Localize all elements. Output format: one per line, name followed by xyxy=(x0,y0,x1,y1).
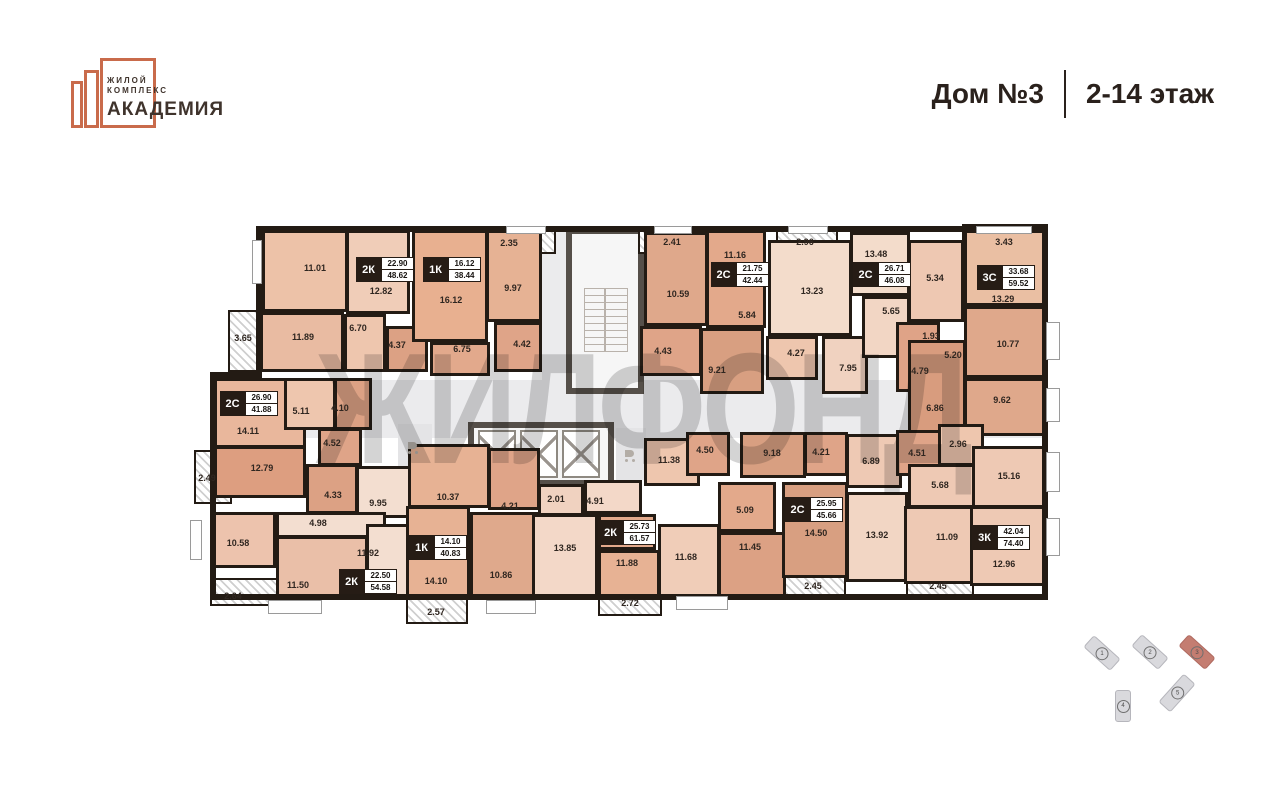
room-area-label: 4.43 xyxy=(654,346,672,356)
apartment-badge[interactable]: 1К16.1238.44 xyxy=(423,257,481,282)
room-area-label: 14.50 xyxy=(805,528,828,538)
room-block xyxy=(260,312,344,372)
window-opening xyxy=(976,226,1032,234)
room-area-label: 16.12 xyxy=(440,295,463,305)
living-area: 22.90 xyxy=(382,258,413,269)
room-area-label: 1.93 xyxy=(922,331,940,341)
apartment-badge[interactable]: 3К42.0474.40 xyxy=(972,525,1030,550)
room-area-label: 10.58 xyxy=(227,538,250,548)
room-area-label: 4.27 xyxy=(787,348,805,358)
logo-line2: КОМПЛЕКС xyxy=(107,86,224,96)
room-area-label: 10.37 xyxy=(437,492,460,502)
room-block xyxy=(532,514,598,598)
window-opening xyxy=(788,226,828,234)
logo-name: АКАДЕМИЯ xyxy=(107,99,224,121)
total-area: 38.44 xyxy=(449,270,480,281)
room-area-label: 11.50 xyxy=(287,580,309,590)
room-area-label: 4.33 xyxy=(324,490,342,500)
living-area: 25.73 xyxy=(624,521,655,532)
logo-bar-icon xyxy=(71,81,83,128)
minimap-building-2[interactable]: 2 xyxy=(1131,634,1168,670)
total-area: 46.08 xyxy=(879,275,910,286)
apartment-type: 3С xyxy=(977,265,1002,290)
room-area-label: 11.38 xyxy=(658,455,680,465)
room-area-label: 2.96 xyxy=(796,237,814,247)
page-title: Дом №3 2-14 этаж xyxy=(932,70,1214,118)
room-area-label: 4.37 xyxy=(388,340,406,350)
room-area-label: 14.11 xyxy=(237,426,259,436)
room-block xyxy=(700,328,764,394)
apartment-type: 2С xyxy=(220,391,245,416)
room-area-label: 9.21 xyxy=(708,365,726,375)
room-area-label: 3.65 xyxy=(234,333,252,343)
apartment-type: 2С xyxy=(711,262,736,287)
room-area-label: 5.68 xyxy=(931,480,949,490)
room-area-label: 4.42 xyxy=(513,339,531,349)
room-area-label: 14.10 xyxy=(425,576,448,586)
minimap-building-number: 4 xyxy=(1117,700,1130,713)
apartment-type: 1К xyxy=(409,535,434,560)
stroller-icon xyxy=(624,450,638,462)
room-area-label: 4.21 xyxy=(812,447,830,457)
room-area-label: 4.50 xyxy=(696,445,714,455)
apartment-badge[interactable]: 1К14.1040.83 xyxy=(409,535,467,560)
room-area-label: 13.29 xyxy=(992,294,1015,304)
apartment-badge[interactable]: 2С26.7146.08 xyxy=(853,262,911,287)
living-area: 33.68 xyxy=(1003,266,1034,277)
living-area: 21.75 xyxy=(737,263,768,274)
minimap-building-number: 3 xyxy=(1191,646,1204,659)
wall-segment xyxy=(210,372,216,600)
room-area-label: 11.68 xyxy=(675,552,697,562)
house-number: Дом №3 xyxy=(932,78,1044,110)
room-block xyxy=(412,230,488,342)
total-area: 74.40 xyxy=(998,538,1029,549)
living-area: 22.50 xyxy=(365,570,396,581)
room-area-label: 2.72 xyxy=(621,598,639,608)
apartment-badge[interactable]: 2С21.7542.44 xyxy=(711,262,769,287)
apartment-type: 2К xyxy=(339,569,364,594)
room-area-label: 3.43 xyxy=(995,237,1013,247)
room-area-label: 9.97 xyxy=(504,283,522,293)
minimap-building-number: 1 xyxy=(1096,647,1109,660)
minimap-building-number: 5 xyxy=(1171,687,1184,700)
room-area-label: 4.51 xyxy=(908,448,926,458)
room-area-label: 13.23 xyxy=(801,286,824,296)
room-block xyxy=(766,336,818,380)
room-area-label: 2.57 xyxy=(427,607,445,617)
apartment-type: 3К xyxy=(972,525,997,550)
floor-range: 2-14 этаж xyxy=(1086,78,1214,110)
room-area-label: 11.88 xyxy=(616,558,638,568)
title-divider xyxy=(1064,70,1066,118)
room-area-label: 5.84 xyxy=(738,310,756,320)
wall-segment xyxy=(210,372,262,378)
living-area: 26.90 xyxy=(246,392,277,403)
room-area-label: 6.70 xyxy=(349,323,367,333)
room-area-label: 5.20 xyxy=(944,350,962,360)
room-block xyxy=(470,512,538,598)
room-area-label: 10.86 xyxy=(490,570,513,580)
corridor xyxy=(542,232,568,380)
room-area-label: 13.48 xyxy=(865,249,888,259)
room-area-label: 4.79 xyxy=(911,366,929,376)
room-area-label: 12.96 xyxy=(993,559,1016,569)
room-area-label: 4.21 xyxy=(501,501,519,511)
room-area-label: 11.16 xyxy=(724,250,746,260)
living-area: 14.10 xyxy=(435,536,466,547)
room-area-label: 2.96 xyxy=(949,439,967,449)
room-area-label: 2.64 xyxy=(224,591,242,601)
wall-segment xyxy=(258,226,1048,232)
window-opening xyxy=(1046,452,1060,492)
room-area-label: 5.65 xyxy=(882,306,900,316)
stroller-icon xyxy=(407,442,421,454)
room-area-label: 10.77 xyxy=(997,339,1020,349)
room-area-label: 4.98 xyxy=(309,518,327,528)
logo-line1: ЖИЛОЙ xyxy=(107,76,224,86)
apartment-badge[interactable]: 2К22.9048.62 xyxy=(356,257,414,282)
total-area: 42.44 xyxy=(737,275,768,286)
room-area-label: 9.95 xyxy=(369,498,387,508)
total-area: 61.57 xyxy=(624,533,655,544)
minimap-building-4[interactable]: 4 xyxy=(1115,690,1131,722)
room-area-label: 5.11 xyxy=(292,406,309,416)
room-area-label: 11.89 xyxy=(292,332,314,342)
window-opening xyxy=(268,600,322,614)
room-area-label: 9.62 xyxy=(993,395,1011,405)
room-area-label: 2.35 xyxy=(500,238,518,248)
room-area-label: 5.09 xyxy=(736,505,754,515)
floorplan-page: { "header": { "logo": {"line1": "ЖИЛОЙ",… xyxy=(0,0,1280,787)
living-area: 26.71 xyxy=(879,263,910,274)
room-block xyxy=(284,378,336,430)
logo-bar-icon xyxy=(84,70,99,128)
room-area-label: 7.95 xyxy=(839,363,857,373)
window-opening xyxy=(486,600,536,614)
logo-text: ЖИЛОЙ КОМПЛЕКС АКАДЕМИЯ xyxy=(107,76,224,121)
apartment-type: 2С xyxy=(785,497,810,522)
room-area-label: 9.18 xyxy=(763,448,781,458)
room-area-label: 2.41 xyxy=(663,237,681,247)
room-area-label: 4.52 xyxy=(323,438,341,448)
apartment-badge[interactable]: 2К25.7361.57 xyxy=(598,520,656,545)
total-area: 45.66 xyxy=(811,510,842,521)
window-opening xyxy=(1046,518,1060,556)
minimap-building-1[interactable]: 1 xyxy=(1083,635,1120,671)
apartment-badge[interactable]: 2С25.9545.66 xyxy=(785,497,843,522)
total-area: 48.62 xyxy=(382,270,413,281)
living-area: 42.04 xyxy=(998,526,1029,537)
room-area-label: 11.92 xyxy=(357,548,379,558)
room-area-label: 12.82 xyxy=(370,286,393,296)
apartment-type: 1К xyxy=(423,257,448,282)
apartment-type: 2К xyxy=(356,257,381,282)
window-opening xyxy=(654,226,692,234)
total-area: 59.52 xyxy=(1003,278,1034,289)
room-area-label: 2.45 xyxy=(929,581,947,591)
room-area-label: 4.10 xyxy=(331,403,349,413)
room-area-label: 13.92 xyxy=(866,530,889,540)
room-block xyxy=(904,506,974,584)
room-area-label: 11.09 xyxy=(936,532,958,542)
room-block xyxy=(306,464,358,514)
room-area-label: 15.16 xyxy=(998,471,1021,481)
minimap-building-number: 2 xyxy=(1144,646,1157,659)
window-opening xyxy=(506,226,546,234)
room-area-label: 4.91 xyxy=(586,496,604,506)
apartment-type: 2С xyxy=(853,262,878,287)
room-area-label: 11.45 xyxy=(739,542,761,552)
minimap-building-5[interactable]: 5 xyxy=(1158,674,1195,713)
room-area-label: 2.45 xyxy=(804,581,822,591)
minimap-building-3[interactable]: 3 xyxy=(1178,634,1215,670)
room-area-label: 13.85 xyxy=(554,543,577,553)
window-opening xyxy=(676,596,728,610)
room-area-label: 6.75 xyxy=(453,344,471,354)
room-area-label: 2.01 xyxy=(547,494,565,504)
room-area-label: 6.89 xyxy=(862,456,880,466)
room-area-label: 5.34 xyxy=(926,273,944,283)
window-opening xyxy=(1046,322,1060,360)
room-area-label: 11.01 xyxy=(304,263,326,273)
window-opening xyxy=(252,240,262,284)
living-area: 25.95 xyxy=(811,498,842,509)
stair-rail xyxy=(604,288,606,352)
room-area-label: 6.86 xyxy=(926,403,944,413)
logo: ЖИЛОЙ КОМПЛЕКС АКАДЕМИЯ xyxy=(68,52,288,142)
total-area: 54.58 xyxy=(365,582,396,593)
total-area: 41.88 xyxy=(246,404,277,415)
room-area-label: 10.59 xyxy=(667,289,690,299)
total-area: 40.83 xyxy=(435,548,466,559)
elevator-shaft xyxy=(562,430,600,478)
window-opening xyxy=(190,520,202,560)
apartment-badge[interactable]: 2К22.5054.58 xyxy=(339,569,397,594)
window-opening xyxy=(1046,388,1060,422)
room-area-label: 12.79 xyxy=(251,463,274,473)
room-area-label: 2.49 xyxy=(198,473,216,483)
staircase xyxy=(584,288,628,352)
apartment-badge[interactable]: 3С33.6859.52 xyxy=(977,265,1035,290)
living-area: 16.12 xyxy=(449,258,480,269)
apartment-type: 2К xyxy=(598,520,623,545)
apartment-badge[interactable]: 2С26.9041.88 xyxy=(220,391,278,416)
